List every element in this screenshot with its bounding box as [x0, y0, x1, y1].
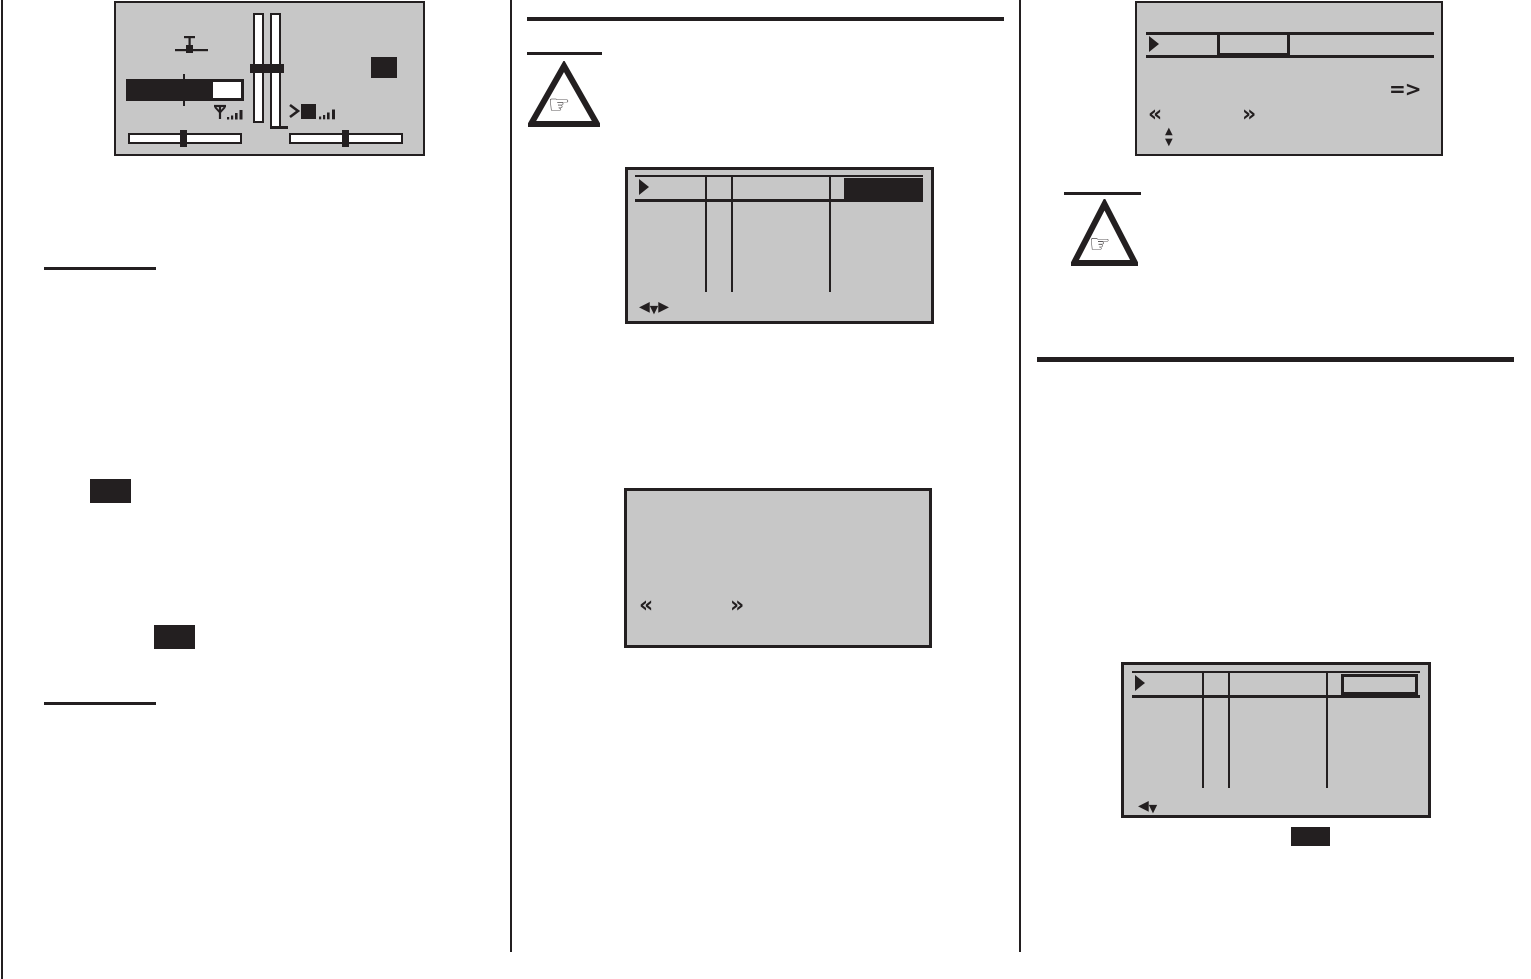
header-top-line — [1132, 671, 1420, 673]
bar-center-tick-bottom — [183, 101, 185, 106]
progress-bar-fill — [129, 82, 213, 98]
arrow-down-icon: ▼ — [1165, 138, 1173, 148]
key-label-block-1 — [90, 479, 131, 503]
column-line-3 — [829, 175, 831, 292]
nav-arrows: ◀ ▼ ▶ — [639, 300, 669, 315]
store-arrow-symbol: => — [1389, 79, 1421, 99]
page-canvas: ☞ ◀ ▼ ▶ « » => « » ▲ ▼ — [0, 0, 1531, 979]
header-bottom-line — [1132, 695, 1420, 698]
pointing-hand-icon: ☞ — [548, 92, 570, 117]
arrow-down-icon: ▼ — [1149, 803, 1157, 814]
header-top-line — [635, 175, 923, 177]
screen-value-edit: => « » ▲ ▼ — [1135, 1, 1443, 156]
heading-underline-left-2 — [44, 702, 156, 705]
page-forward-icon: » — [1242, 104, 1256, 126]
section-rule-middle — [527, 17, 1004, 21]
pointing-hand-icon: ☞ — [1089, 232, 1111, 256]
selected-value-frame — [1217, 32, 1290, 56]
note-triangle-2: ☞ — [1071, 199, 1138, 268]
page-forward-icon: » — [730, 595, 744, 617]
selected-cell-frame — [1341, 674, 1418, 695]
column-line-3 — [1326, 671, 1328, 788]
trim-indicator-icon — [175, 36, 209, 56]
screen-menu-list-outlined: ◀ ▼ — [1121, 662, 1431, 818]
note-triangle-1: ☞ — [528, 61, 600, 129]
cursor-icon — [1135, 675, 1145, 691]
key-label-block-2 — [154, 625, 195, 649]
arrow-down-icon: ▼ — [650, 304, 658, 315]
value-up-down-icon: ▲ ▼ — [1165, 127, 1173, 148]
key-label-block-3 — [1291, 827, 1330, 846]
column-line-2 — [731, 175, 733, 292]
arrow-right-icon: ▶ — [658, 300, 669, 314]
progress-bar — [126, 79, 244, 101]
screen-menu-list-selected: ◀ ▼ ▶ — [625, 167, 934, 324]
selected-cell-inverted — [844, 178, 923, 200]
screen-main-display — [114, 1, 425, 156]
cursor-icon — [639, 179, 649, 195]
row-top-line — [1146, 32, 1434, 35]
column-line-1 — [1202, 671, 1204, 788]
page-back-icon: « — [1148, 104, 1162, 126]
antenna-signal-icon — [213, 103, 245, 120]
status-black-square — [371, 57, 397, 78]
cursor-icon — [1149, 36, 1159, 52]
arrow-left-icon: ◀ — [1138, 799, 1149, 813]
row-bottom-line — [1146, 55, 1434, 58]
horizontal-trim-right-marker — [342, 130, 349, 147]
heading-underline-left-1 — [44, 267, 156, 270]
column-divider-2 — [1019, 0, 1021, 952]
column-line-2 — [1228, 671, 1230, 788]
arrow-left-icon: ◀ — [639, 300, 650, 314]
arrow-up-icon: ▲ — [1165, 127, 1173, 137]
section-rule-right — [1037, 357, 1514, 362]
page-back-icon: « — [639, 595, 653, 617]
screen-text-page: « » — [624, 488, 932, 648]
heading-underline-right — [1064, 192, 1141, 195]
horizontal-trim-left-marker — [180, 130, 187, 147]
page-left-edge-line — [1, 0, 3, 979]
heading-underline-middle — [527, 52, 602, 55]
column-line-1 — [705, 175, 707, 292]
vertical-trim-right-marker — [267, 64, 284, 73]
vertical-trim-right-foot — [270, 126, 288, 129]
column-divider-1 — [510, 0, 512, 952]
vertical-trim-left-marker — [250, 64, 267, 73]
nav-arrows: ◀ ▼ — [1138, 799, 1157, 814]
receiver-signal-icon — [288, 102, 340, 121]
bar-center-tick-top — [183, 74, 185, 79]
